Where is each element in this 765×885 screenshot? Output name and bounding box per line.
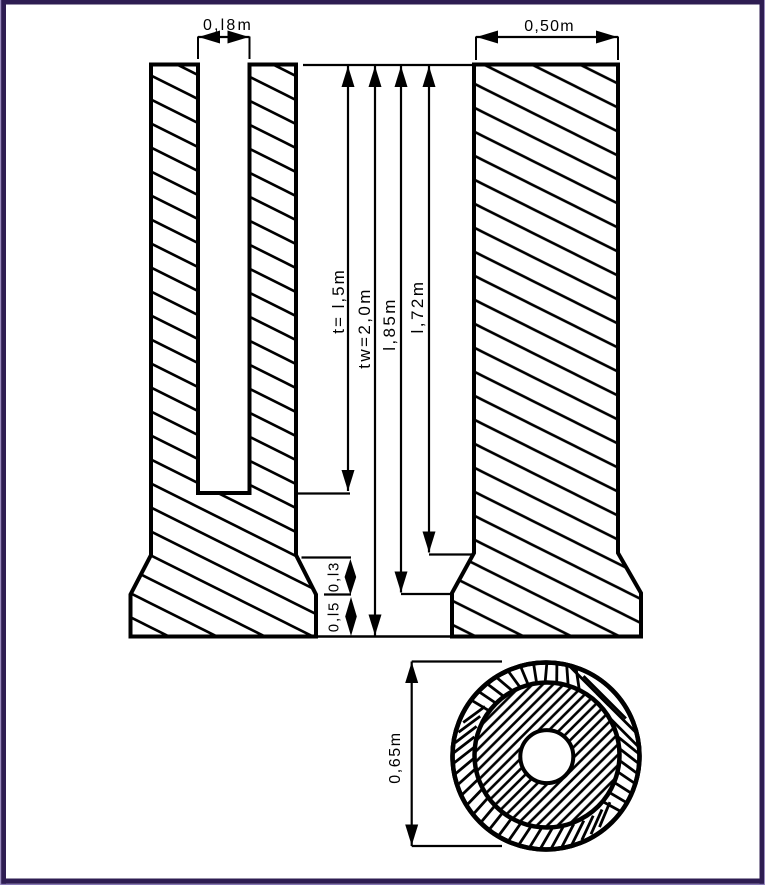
svg-text:tw=2,0m: tw=2,0m xyxy=(355,287,374,369)
svg-text:l,72m: l,72m xyxy=(408,279,427,333)
svg-text:0,l3: 0,l3 xyxy=(326,561,343,592)
svg-text:0,l8m: 0,l8m xyxy=(203,17,253,34)
svg-text:0,50m: 0,50m xyxy=(524,18,574,35)
svg-text:t= l,5m: t= l,5m xyxy=(329,268,348,334)
svg-text:0,65m: 0,65m xyxy=(387,731,404,783)
svg-text:l,85m: l,85m xyxy=(380,297,399,351)
svg-text:0,l5: 0,l5 xyxy=(326,601,343,632)
